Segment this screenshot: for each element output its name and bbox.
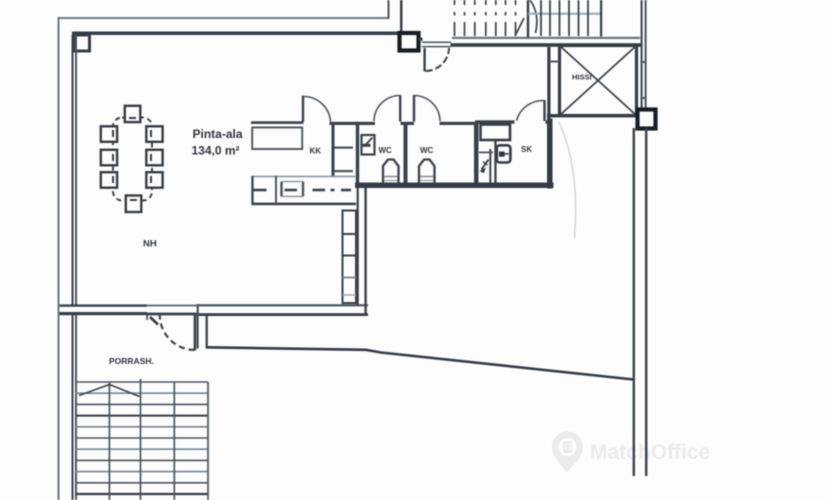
svg-text:WC: WC [420, 146, 434, 155]
svg-text:HISSI: HISSI [572, 73, 592, 82]
svg-text:WC: WC [379, 146, 393, 155]
svg-text:134,0 m²: 134,0 m² [192, 144, 240, 158]
svg-text:KK: KK [310, 147, 322, 156]
svg-text:NH: NH [143, 239, 157, 250]
svg-text:Pinta-ala: Pinta-ala [193, 127, 243, 141]
svg-text:SK: SK [521, 145, 532, 154]
svg-text:PORRASH.: PORRASH. [109, 356, 154, 366]
svg-text:MatchOffice: MatchOffice [590, 441, 710, 464]
